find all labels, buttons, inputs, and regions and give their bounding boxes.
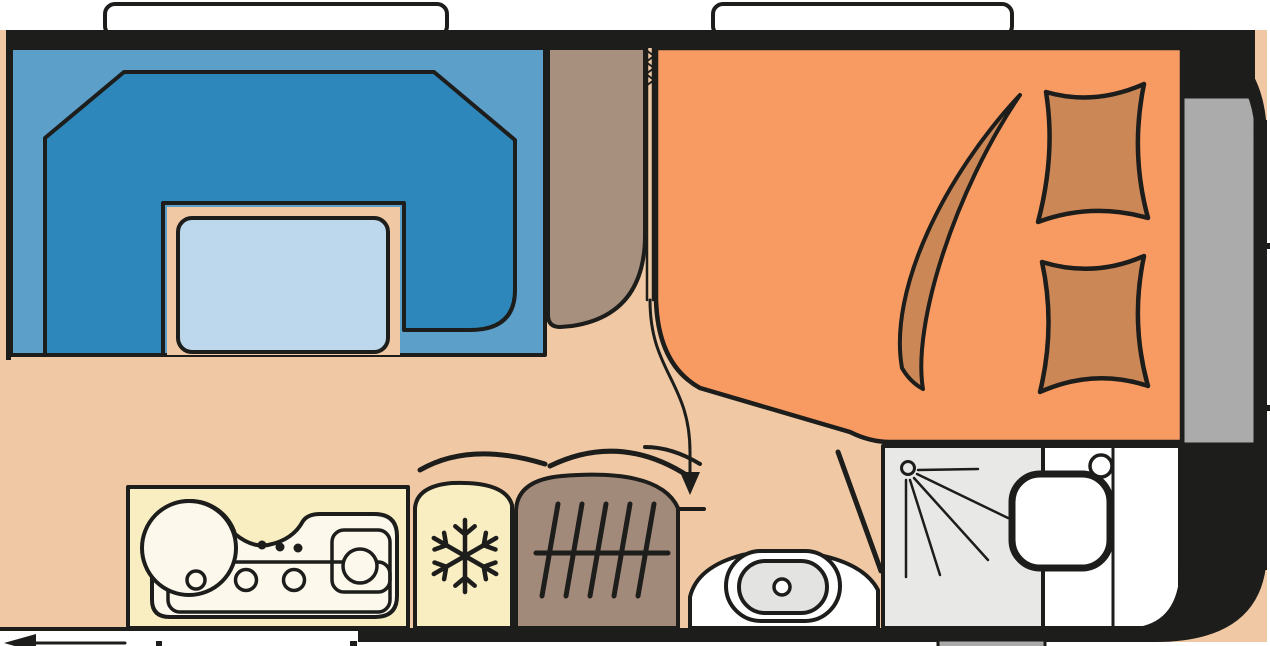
burner: [236, 570, 257, 591]
burner: [284, 570, 305, 591]
faucet: [1090, 455, 1112, 477]
bed: [656, 48, 1182, 442]
washbasin: [1012, 474, 1110, 568]
drawbar-stub: [1262, 405, 1270, 411]
burner: [343, 549, 377, 583]
toilet-flush: [774, 579, 790, 595]
knob: [276, 543, 285, 552]
toilet: [726, 551, 840, 621]
kitchen: [128, 487, 408, 628]
knob: [294, 544, 303, 553]
dinette-table: [178, 218, 388, 352]
knob: [258, 541, 267, 550]
front-storage-shelf: [1183, 97, 1255, 444]
service-hatch: [938, 640, 1045, 646]
entrance: [0, 627, 358, 646]
caravan-floorplan: [0, 0, 1270, 646]
dinette: [11, 48, 545, 355]
door-lintel: [0, 627, 358, 631]
top-wall: [6, 30, 1182, 48]
left-wall-edge: [6, 30, 11, 360]
door-stub: [350, 641, 357, 646]
drawbar-stub: [1262, 243, 1270, 249]
pillow: [1040, 256, 1148, 392]
pillow: [1038, 84, 1148, 222]
wardrobe: [548, 48, 645, 327]
door-stub: [156, 641, 162, 646]
entrance-door: [0, 631, 358, 642]
sink-drain: [187, 571, 205, 589]
